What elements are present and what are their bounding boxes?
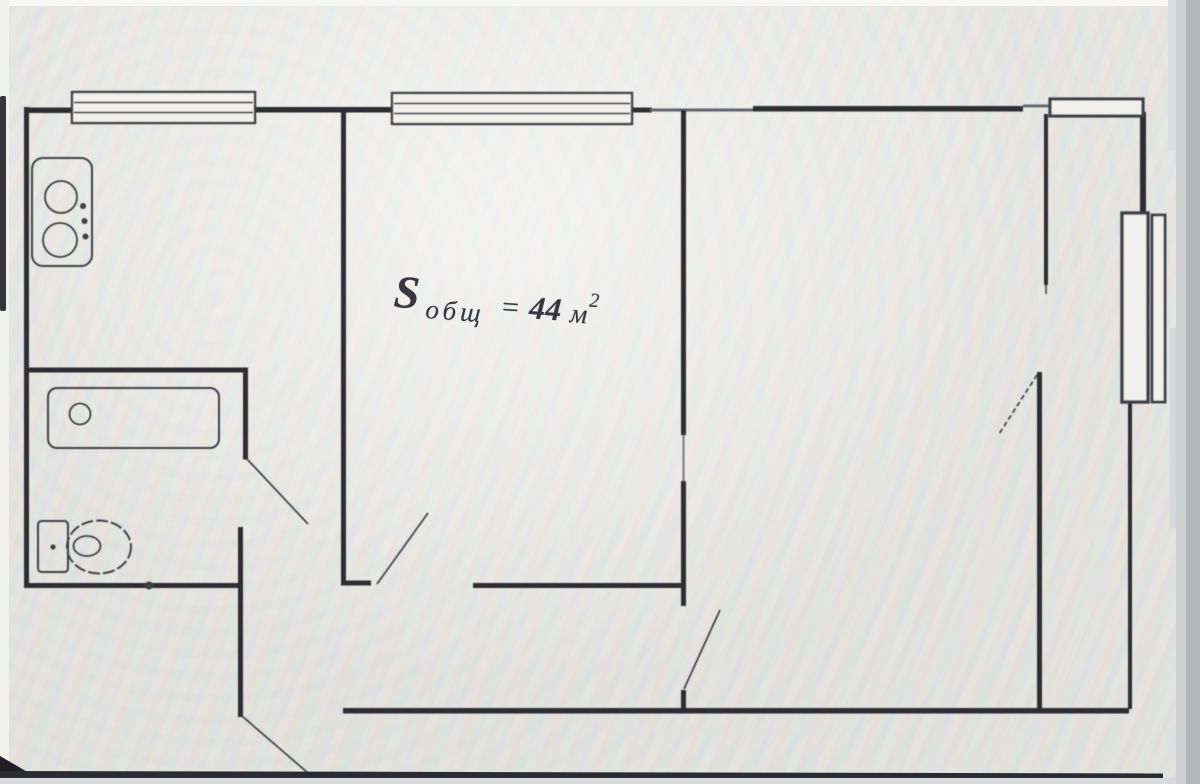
wall-top-between-windows [255, 107, 393, 113]
wall-bottom [343, 708, 1129, 714]
bathtub-icon [48, 388, 219, 448]
wall-bathroom-bottom [24, 583, 241, 588]
wall-bathroom-right [243, 368, 248, 460]
bathroom-door-swing-icon [247, 459, 308, 524]
balcony-door-swing-icon [999, 375, 1037, 434]
wall-top-left [25, 108, 72, 114]
wall-top-balcony-thin [1023, 105, 1052, 108]
entry-door-swing-icon [242, 716, 308, 773]
balcony-side-window-inner-icon [1152, 215, 1165, 402]
living-room-window-icon [392, 93, 632, 124]
toilet-icon [38, 521, 131, 574]
wall-middle-upper [681, 110, 686, 435]
area-symbol: S [392, 265, 421, 320]
wall-hallway-bottom [473, 583, 683, 588]
living-room-door-swing-icon [377, 513, 428, 584]
wall-balcony-upper [1044, 114, 1048, 285]
wall-bathroom-top [24, 368, 248, 373]
kitchen-window-icon [72, 92, 255, 123]
wall-kitchen-divider-stub [341, 581, 371, 586]
photo-edge-right-step-1 [1168, 0, 1176, 150]
wall-hallway-left [238, 527, 243, 717]
balcony-side-window-outer-icon [1122, 213, 1148, 402]
door-hinge-marker-dot [145, 582, 153, 590]
floorplan-drawing [0, 0, 1200, 784]
photo-edge-right-inner [1176, 0, 1186, 784]
stove-icon [32, 158, 92, 266]
wall-left [24, 107, 29, 588]
wall-balcony-upper-tip [1045, 285, 1047, 294]
wall-top-right [753, 106, 1023, 112]
area-subscript: общ [425, 294, 486, 329]
wall-bedroom-door-jamb [681, 690, 686, 710]
wall-balcony-lower [1037, 372, 1042, 709]
wall-kitchen-divider [341, 110, 346, 583]
photo-edge-left-dark [0, 96, 6, 311]
bedroom-door-swing-icon [684, 610, 720, 689]
area-value: 44 [528, 289, 563, 328]
photo-edge-top-margin [0, 0, 1200, 6]
photo-edge-right-band [1186, 0, 1200, 784]
wall-top-thin [650, 109, 754, 112]
wall-right-upper [1140, 112, 1146, 213]
area-unit: м [569, 298, 588, 330]
area-equals: = [499, 290, 522, 325]
wall-top-stub [630, 108, 652, 113]
wall-middle-faded [683, 435, 685, 481]
area-exponent: 2 [588, 289, 600, 313]
balcony-top-window-icon [1050, 99, 1143, 116]
wall-right-lower [1128, 402, 1132, 709]
photo-edge-bottom-light [0, 778, 1200, 784]
floorplan-photo: Sобщ=44м2 [0, 0, 1200, 784]
